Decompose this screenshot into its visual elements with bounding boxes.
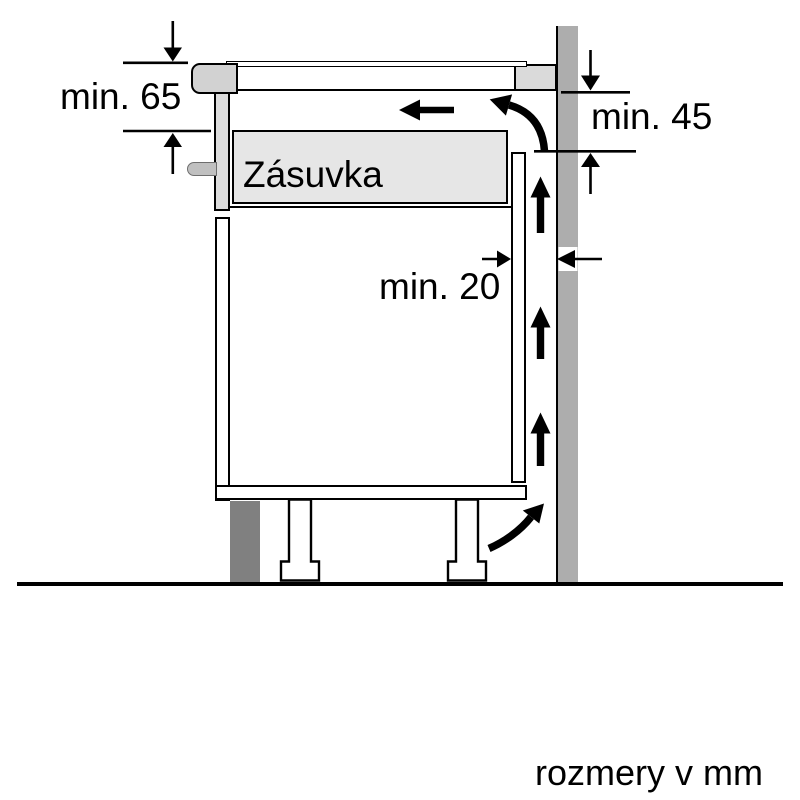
dim-arrow-up-wall-clearance (581, 153, 600, 194)
hob-front-trim (191, 63, 238, 94)
cabinet-front-panel (215, 217, 231, 501)
cabinet-back-panel (511, 152, 527, 484)
hob-body-panel (214, 92, 230, 211)
airflow-arrow-up-3 (531, 413, 551, 467)
worktop-spacer-block (514, 64, 557, 91)
dim-arrow-down-wall-clearance (581, 50, 600, 91)
dim-arrow-down-hob-depth (164, 21, 183, 62)
dim-label-hob-depth: min. 65 (60, 77, 181, 118)
dim-arrow-up-hob-depth (164, 133, 183, 174)
airflow-arrow-up-2 (531, 307, 551, 360)
drawer-label: Zásuvka (243, 155, 383, 196)
airflow-arrow-curved-bottom (489, 504, 544, 549)
airflow-arrow-up-1 (531, 177, 551, 234)
installation-diagram: Zásuvka min. 65 min. 45 min. 20 rozmery … (0, 0, 800, 800)
dim-label-wall-clearance: min. 45 (591, 97, 712, 138)
units-note: rozmery v mm (535, 753, 763, 793)
dim-arrow-right-rear-gap (482, 251, 511, 268)
cabinet-rail-line (230, 206, 512, 209)
worktop (228, 64, 557, 91)
hob-handle (187, 162, 217, 176)
plinth (230, 501, 260, 582)
dim-label-rear-gap: min. 20 (379, 267, 500, 308)
cabinet-leg-rear (448, 500, 486, 581)
floor-line (17, 582, 783, 587)
cabinet-bottom-panel (215, 485, 528, 500)
wall (558, 26, 578, 582)
cabinet-leg-front (281, 500, 319, 581)
airflow-arrow-left (399, 100, 454, 121)
hob-glass (226, 61, 527, 67)
